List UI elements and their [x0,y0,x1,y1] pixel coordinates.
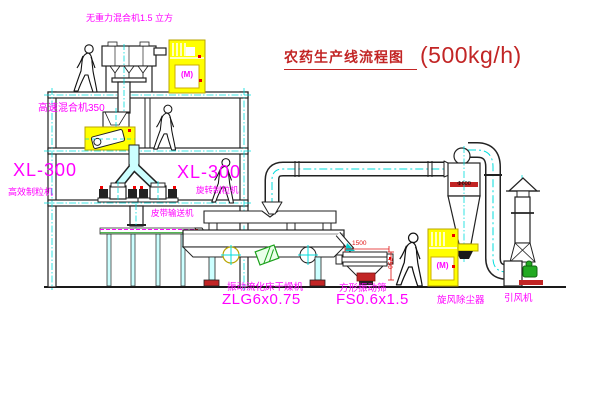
sieve-model-label: FS0.6x1.5 [336,292,409,307]
granulator-right-model-label: XL-300 [177,163,241,181]
granulator-right [138,181,178,202]
fluid-bed-dryer [183,211,344,286]
cyclone-diameter-dimension: Φ600 [450,182,478,188]
granulator-right-name-label: 旋转制粒机 [196,186,239,195]
granulator-left-name-label: 高效制粒机 [8,188,53,197]
diagram-title-rate: (500kg/h) [420,44,522,67]
sieve-width-dimension: 1500 [352,241,366,248]
title-underline [284,69,417,70]
pesticide-line-flow-diagram: 农药生产线流程图 (500kg/h) 无重力混合机1.5 立方 高速混合机350… [0,0,600,403]
person-icon [154,105,176,150]
dryer-model-label: ZLG6x0.75 [222,292,301,307]
gravity-free-mixer [102,42,166,116]
diagram-title: 农药生产线流程图 [284,50,404,64]
exhaust-duct-dryer-to-cyclone [262,161,454,214]
granulator-left-model-label: XL-300 [13,161,77,179]
cyclone-name-label: 旋风除尘器 [437,296,485,306]
control-cabinet-top [169,40,205,93]
person-icon [396,233,422,286]
high-speed-mixer-label: 高速混合机350 [38,104,105,114]
induced-draft-fan [504,261,543,286]
cabinet-right-motor-symbol: (M) [431,262,454,270]
cabinet-top-motor-symbol: (M) [175,71,199,79]
belt-conveyor-label: 皮带输送机 [151,209,194,218]
gravity-mixer-label: 无重力混合机1.5 立方 [86,14,173,23]
granulator-discharge-pipe [127,204,146,230]
granulator-left [98,181,138,202]
sieve-height-dimension: 750 [386,258,393,269]
high-speed-mixer [85,108,135,150]
control-cabinet-right [428,229,458,286]
person-icon [74,45,97,92]
fan-name-label: 引风机 [504,294,533,304]
